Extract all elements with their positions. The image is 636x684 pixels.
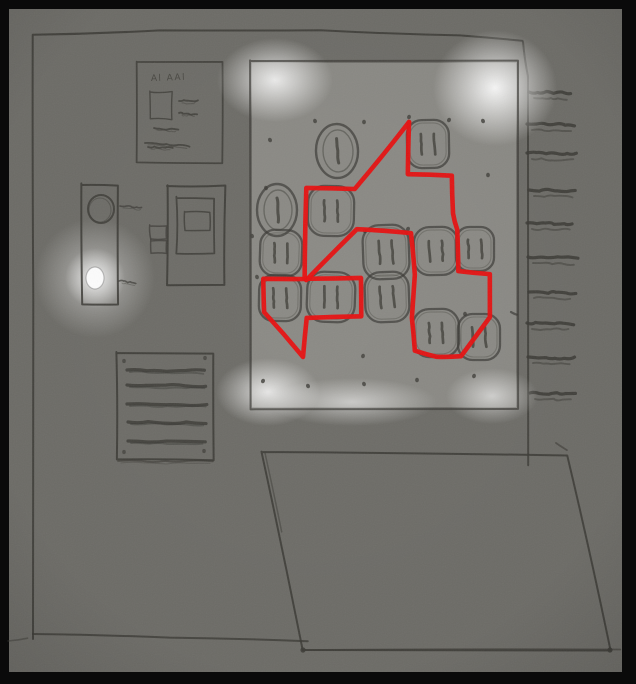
sketch-page: Al AAl — [0, 0, 636, 684]
paper-grain — [9, 9, 622, 672]
panel-sketch-scene: Al AAl — [0, 0, 636, 684]
